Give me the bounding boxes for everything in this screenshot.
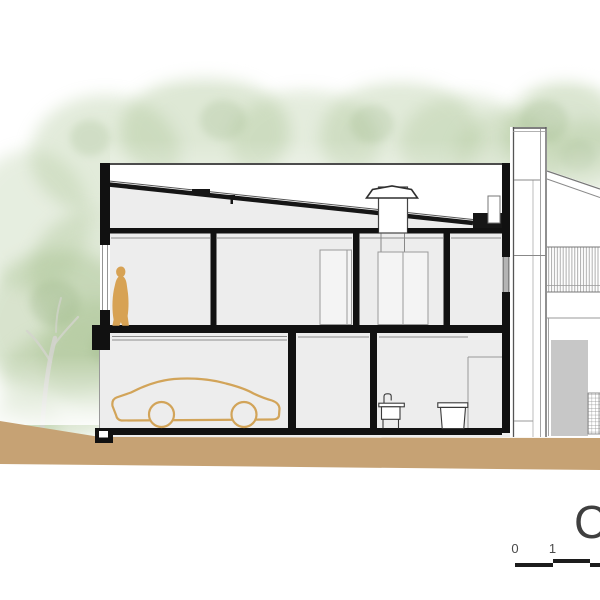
- scale-tick-0: 0: [509, 541, 521, 556]
- architectural-section-sheet: C 0 1: [0, 0, 600, 600]
- scale-bar-segment: [590, 563, 600, 567]
- scale-bar-segment: [515, 563, 553, 567]
- sheet-annotations: C 0 1: [0, 0, 600, 600]
- scale-tick-1: 1: [547, 541, 559, 556]
- section-title: C: [574, 499, 600, 545]
- scale-bar-segment: [553, 559, 591, 563]
